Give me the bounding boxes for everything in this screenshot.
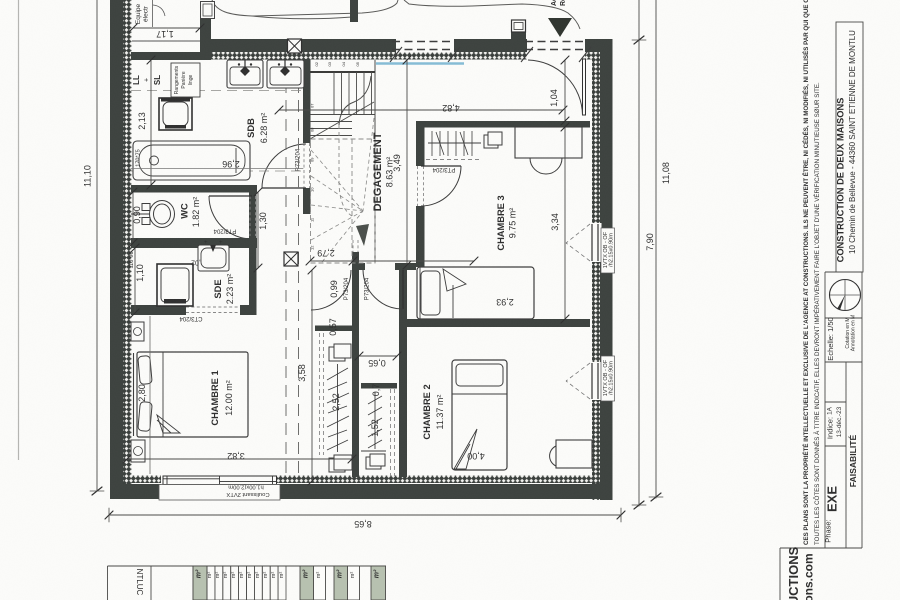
svg-text:1A: 1A [827,406,834,415]
svg-text:FAISABILITÉ: FAISABILITÉ [848,434,858,487]
svg-text:EXE: EXE [825,486,840,512]
svg-text:m²: m² [271,572,277,579]
svg-text:TOUTES LES CÔTES SONT DONNÉS À: TOUTES LES CÔTES SONT DONNÉS À TITRE IND… [814,82,821,545]
svg-text:m²: m² [279,572,285,579]
svg-text:m²: m² [239,572,245,579]
svg-text:Annotation en M: Annotation en M [851,315,857,351]
svg-text:CES PLANS SONT LA PROPRIÉTÉ IN: CES PLANS SONT LA PROPRIÉTÉ INTELLECTUEL… [802,0,810,545]
svg-text:m²: m² [255,572,261,579]
svg-text:m²: m² [303,569,310,578]
svg-text:m²: m² [223,572,229,579]
svg-text:13-déc.-23: 13-déc.-23 [836,406,843,437]
svg-text:Echelle: 1/50: Echelle: 1/50 [826,317,835,360]
svg-text:m²: m² [215,572,221,579]
svg-text:m²: m² [196,569,203,578]
svg-text:m²: m² [316,572,322,579]
svg-text:m²: m² [374,569,381,578]
svg-text:m²: m² [263,572,269,579]
svg-text:CONSTRUCTION DE DEUX MAISONS: CONSTRUCTION DE DEUX MAISONS [836,98,846,263]
svg-text:m²: m² [231,572,237,579]
svg-text:Indice:: Indice: [826,417,835,439]
svg-text:Phase:: Phase: [824,519,833,542]
svg-text:NTLUC: NTLUC [135,569,144,596]
svg-text:m²: m² [207,572,213,579]
svg-text:10 Chemin de Bellevue - 44360: 10 Chemin de Bellevue - 44360 SAINT ETIE… [848,30,857,254]
svg-text:m²: m² [247,572,253,579]
svg-text:UCTIONS: UCTIONS [786,546,801,600]
svg-text:ons.com: ons.com [802,553,816,600]
svg-text:m²: m² [350,572,356,579]
svg-text:m²: m² [337,569,344,578]
